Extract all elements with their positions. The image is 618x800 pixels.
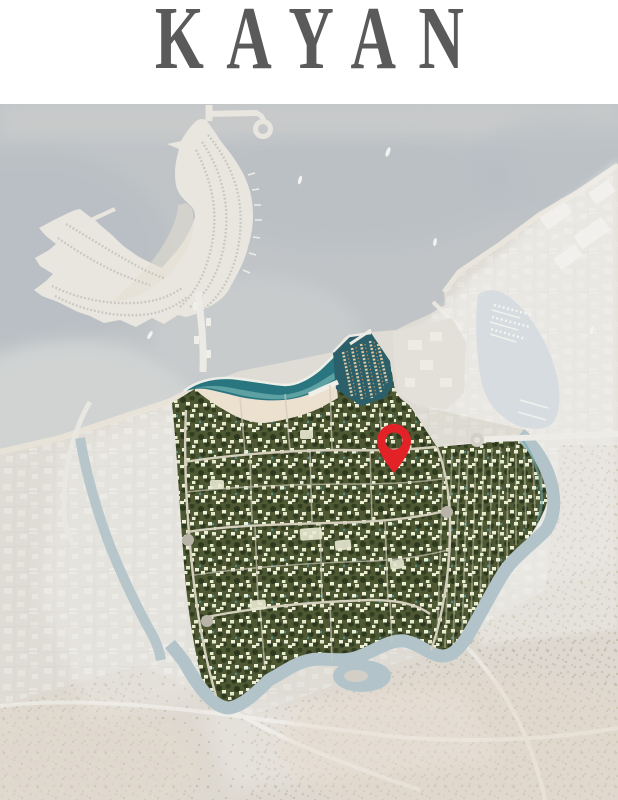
- svg-text:KAYAN: KAYAN: [155, 0, 486, 88]
